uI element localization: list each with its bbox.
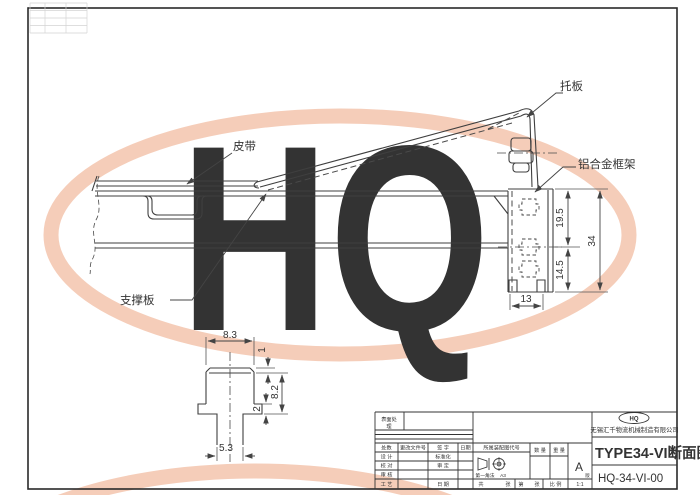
dim-lower-height: 14.5: [555, 260, 566, 280]
company-name: 无锡汇千物流机械制造有限公司: [590, 425, 678, 434]
aluminum-profile: [508, 189, 553, 292]
version-label: 版: [585, 472, 590, 479]
drawing-title: TYPE34-VI断面图: [595, 444, 700, 462]
version-letter: A: [575, 460, 583, 474]
row-check: 校 对: [381, 462, 393, 470]
row-approval: 审 定: [437, 462, 449, 470]
watermark-oval-partial: [0, 471, 544, 495]
col-date: 日期: [460, 445, 470, 452]
scale-label: 比 例: [550, 480, 562, 488]
label-aluminum-frame: 铝合金框架: [578, 157, 636, 171]
dim-cap-height: 8.2: [270, 385, 281, 399]
page-label: 第: [518, 480, 523, 488]
title-block-left-table: 表面处 理 处数 更改文件号 签 字 日期 设 计 校 对 审 核 工 艺 标准…: [381, 415, 471, 488]
row-process: 工 艺: [381, 481, 393, 488]
watermark-letters: HQ: [180, 91, 490, 387]
page-unit: 张: [534, 480, 540, 488]
title-block-middle: 所属装配图代号 第一角法 A3 数 量 重 量 A 版 共 张 第 张 比 例 …: [475, 444, 590, 489]
t-slot-hidden-profiles: [519, 199, 539, 277]
weight-label: 重 量: [553, 446, 565, 454]
row-design: 设 计: [381, 453, 393, 461]
drawing-canvas: HQ: [0, 0, 700, 495]
surface-treatment-label-1: 表面处: [381, 415, 397, 423]
dim-stem-width: 5.3: [219, 443, 233, 454]
col-qty: 处数: [381, 444, 392, 452]
dim-cap-width: 8.3: [223, 330, 237, 341]
surface-treatment-label-2: 理: [386, 423, 392, 430]
drawing-number: HQ-34-VI-00: [598, 473, 663, 485]
projection-method-label: 第一角法: [475, 472, 494, 479]
company-logo-text: HQ: [630, 417, 639, 423]
dim-lip-height: 1: [257, 347, 268, 353]
dim-bottom-width: 13: [520, 294, 532, 305]
hq-watermark: HQ: [0, 91, 629, 495]
assembly-code-label: 所属装配图代号: [483, 444, 519, 452]
col-change-file: 更改文件号: [400, 444, 426, 452]
paper-size-label: A3: [500, 473, 506, 479]
scale-value: 1:1: [576, 482, 583, 488]
first-angle-projection-icon: [478, 457, 506, 471]
engineering-drawing: { "watermark": { "text": "HQ" }, "colors…: [0, 0, 700, 495]
qty-label: 数 量: [534, 446, 546, 454]
dim-upper-height: 19.5: [555, 208, 566, 228]
label-pallet-plate: 托板: [560, 79, 583, 93]
total-label: 共: [478, 480, 483, 488]
dim-foot-height: 2: [252, 406, 263, 412]
total-unit: 张: [505, 480, 511, 488]
row-standardization: 标准化: [435, 453, 451, 461]
label-support-plate: 支撑板: [120, 293, 155, 307]
bolt-head: [513, 163, 529, 172]
dim-total-height: 34: [587, 235, 598, 247]
label-belt: 皮带: [233, 140, 256, 153]
title-block: 表面处 理 处数 更改文件号 签 字 日期 设 计 校 对 审 核 工 艺 标准…: [375, 412, 700, 489]
row-date: 日 期: [437, 481, 449, 488]
row-review: 审 核: [381, 471, 393, 479]
col-sign: 签 字: [437, 444, 449, 452]
